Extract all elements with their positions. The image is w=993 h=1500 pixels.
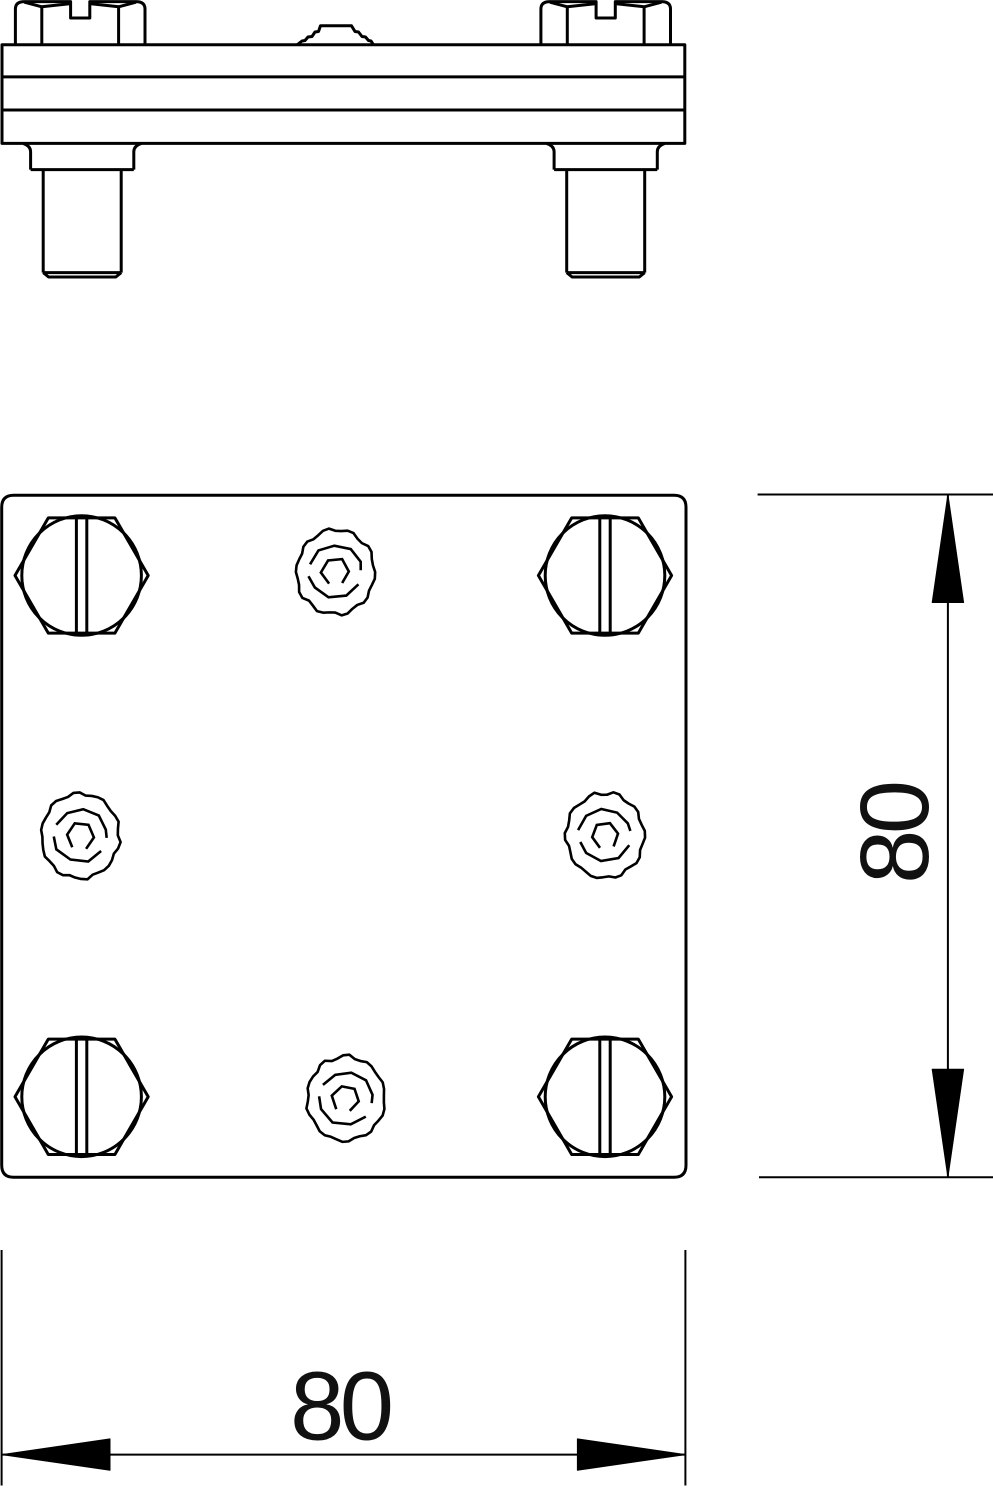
svg-text:80: 80	[840, 783, 949, 884]
svg-text:80: 80	[290, 1352, 391, 1461]
